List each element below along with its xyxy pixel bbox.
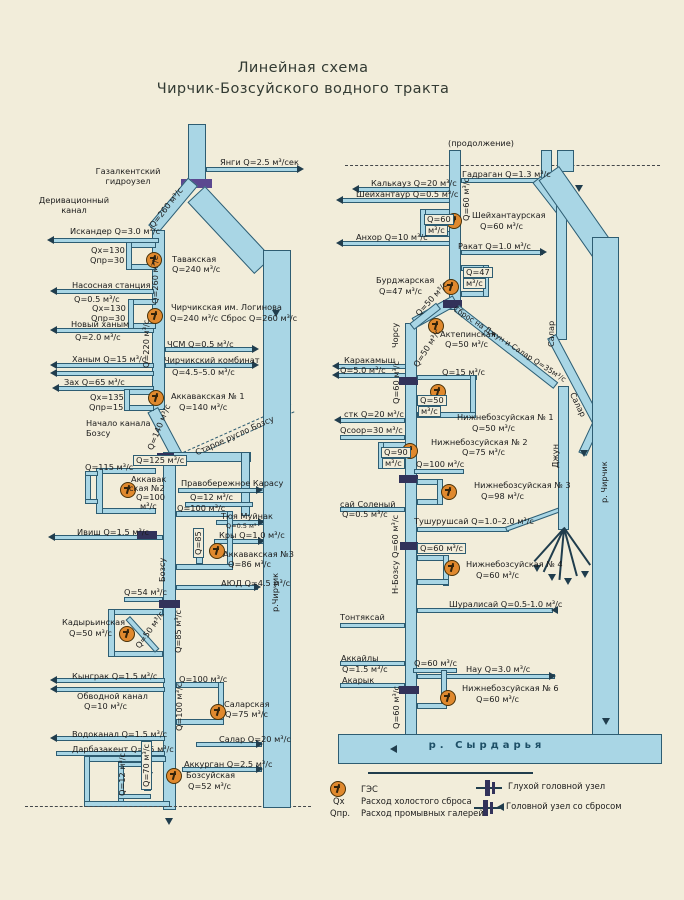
branch-canal — [414, 469, 464, 474]
arrow-left-icon — [50, 326, 57, 334]
diagram-label: Гадраган Q=1.3 м³/с — [462, 170, 551, 179]
headworks-node-bar — [399, 377, 418, 385]
canal-segment — [405, 323, 417, 740]
diagram-label: Q=50 м³/с — [69, 629, 112, 638]
arrow-left-icon — [50, 361, 57, 369]
diagram-label: сай Соленый — [340, 500, 396, 509]
diagram-label: Q=60 — [424, 214, 454, 225]
diagram-label: м³/с — [418, 406, 441, 417]
diagram-label: Чирчикский комбинат — [164, 356, 260, 365]
arrow-left-icon — [52, 384, 59, 392]
diagram-label: Q=60 м³/с — [392, 686, 401, 729]
legend-qpr-label: Расход промывных галерей — [361, 808, 484, 818]
diagram-label: Qх=130 — [91, 246, 125, 255]
diagram-label: м³/с — [382, 458, 405, 469]
diagram-label: Q=100 м³/с — [416, 460, 464, 469]
ges-icon — [440, 690, 456, 706]
branch-canal — [413, 668, 457, 673]
arrow-left-icon — [336, 196, 343, 204]
arrow-down-icon — [580, 450, 588, 457]
branch-canal — [124, 597, 163, 602]
diagram-label: гидроузел — [106, 177, 151, 186]
diagram-label: Q=60 м³/с — [476, 571, 519, 580]
diagram-label: канал — [61, 206, 87, 215]
diagram-label: Кры Q=1.0 м³/с — [219, 531, 285, 540]
legend-node-bar — [485, 780, 490, 796]
title-line2: Чирчик-Бозсуйского водного тракта — [157, 79, 449, 100]
arrow-down-icon — [575, 185, 583, 192]
arrow-left-icon — [390, 745, 397, 753]
ges-icon — [330, 781, 346, 797]
headworks-node-bar — [159, 600, 180, 608]
diagram-label: стк Q=20 м³/с — [344, 410, 404, 419]
diagram-label: Q=70 м³/с — [141, 741, 152, 790]
diagram-label: р.Чирчик — [271, 573, 280, 612]
diagram-label: м³/с — [140, 502, 157, 511]
diagram-label: Q=240 м³/с Сброс Q=260 м³/с — [170, 314, 297, 323]
diagram-label: Q=10 м³/с — [84, 702, 127, 711]
ges-icon — [444, 560, 460, 576]
headworks-node-bar — [399, 475, 418, 483]
diagram-label: Q=115 м³/с — [85, 463, 133, 472]
headworks-node-bar — [400, 542, 418, 550]
diagram-label: Кадырьинская — [62, 618, 125, 627]
legend-qx-symbol: Qх — [333, 796, 345, 806]
diagram-label: Q=4.5–5.0 м³/с — [172, 368, 235, 377]
diagram-label: Начало канала — [86, 419, 150, 428]
diagram-label: Q=50 м³/с — [472, 424, 515, 433]
diagram-label: Qпр=15 — [89, 403, 123, 412]
diagram-label: Q=60 м³/с — [417, 543, 466, 554]
diagram-label: Q=50 м³/с — [445, 340, 488, 349]
diagram-label: Qх=135 — [90, 393, 124, 402]
diagram-label: р. Чирчик — [600, 461, 609, 503]
diagram-label: Водоканал Q=1.5 м³/с — [72, 730, 167, 739]
diagram-label: Q=90 — [381, 447, 411, 458]
diagram-label: Q=60 м³/с — [476, 695, 519, 704]
diagram-label: Q=0.5 м³/с — [342, 510, 388, 519]
diagram-label: Джун — [551, 444, 560, 468]
arrow-left-icon — [50, 676, 57, 684]
branch-canal — [340, 623, 405, 628]
diagram-label: Нау Q=3.0 м³/с — [466, 665, 530, 674]
diagram-label: Q=0.5 м³ — [226, 523, 256, 530]
arrow-left-icon — [332, 362, 339, 370]
arrow-left-icon — [47, 236, 54, 244]
diagram-label: Q=50 — [417, 395, 447, 406]
branch-canal — [56, 371, 154, 376]
diagram-label: Акарык — [342, 676, 374, 685]
branch-canal — [417, 674, 555, 679]
diagram-label: Нижнебозсуйская № 3 — [474, 481, 571, 490]
scheme-page: Линейная схема Чирчик-Бозсуйского водног… — [0, 0, 684, 900]
diagram-label: Нижнебозсуйская № 1 — [457, 413, 554, 422]
arrow-down-icon — [564, 578, 572, 585]
diagram-label: Обводной канал — [77, 692, 148, 701]
ges-icon — [166, 768, 182, 784]
diagram-label: Q=100 м³/с — [179, 675, 227, 684]
legend-node-bar — [490, 802, 493, 814]
canal-segment — [556, 204, 567, 340]
diagram-label: р. Сырдарья — [429, 741, 546, 752]
legend-node-bar — [492, 782, 495, 794]
diagram-label: м³/с — [463, 278, 486, 289]
diagram-label: Qпр=30 — [90, 256, 124, 265]
diagram-label: Ивиш Q=1.5 м³/с — [77, 528, 149, 537]
diagram-label: Искандер Q=3.0 м³/с — [70, 227, 160, 236]
diagram-label: Q=52 м³/с — [188, 782, 231, 791]
diagram-label: Q=12 м³/с — [118, 753, 127, 796]
diagram-label: ЧСМ Q=0.5 м³/с — [167, 340, 234, 349]
diagram-label: Q=60 м³/с — [414, 659, 457, 668]
arrow-down-icon — [165, 818, 173, 825]
diagram-label: Q=98 м³/с — [481, 492, 524, 501]
ges-icon — [119, 626, 135, 642]
diagram-label: Деривационный — [39, 196, 109, 205]
diagram-label: Q=15 м³/с — [442, 368, 485, 377]
legend-spill-node-label: Головной узел со сбросом — [506, 801, 622, 811]
diagram-label: Аккавакская №3 — [223, 550, 294, 559]
title-line1: Линейная схема — [157, 58, 449, 79]
diagram-label: Анхор Q=10 м³/с — [356, 233, 428, 242]
diagram-label: Чорсу — [391, 323, 400, 348]
arrow-left-icon — [334, 416, 341, 424]
arrow-left-icon — [50, 734, 57, 742]
diagram-label: Q=1.5 м³/с — [342, 665, 388, 674]
diagram-label: Q=86 м³/с — [228, 560, 271, 569]
diagram-label: Правобережное Карасу — [181, 479, 283, 488]
diagram-label: Q=12 м³/с — [190, 493, 233, 502]
diagram-label: Ракат Q=1.0 м³/с — [458, 242, 531, 251]
arrow-down-icon — [548, 574, 556, 581]
diagram-label: Q=60 м³/с — [480, 222, 523, 231]
branch-canal — [340, 435, 405, 440]
diagram-label: Q=47 — [463, 267, 493, 278]
headworks-node-bar — [399, 686, 419, 694]
arrow-left-icon — [50, 685, 57, 693]
legend-blind-node-label: Глухой головной узел — [508, 781, 605, 791]
diagram-label: Q=54 м³/с — [124, 588, 167, 597]
diagram-label: Q=60 м³/с — [392, 361, 401, 404]
arrow-left-icon — [336, 239, 343, 247]
diagram-label: Q=5.0 м³/с — [340, 366, 386, 375]
diagram-label: Аккавакская № 1 — [171, 392, 245, 401]
diagram-label: Насосная станция — [72, 281, 151, 290]
diagram-label: Шейхантаур Q=0.5 м³/с — [356, 190, 458, 199]
diagram-label: Q=240 м³/с — [172, 265, 220, 274]
ges-icon — [441, 484, 457, 500]
legend-ges-label: ГЭС — [361, 784, 378, 794]
arrow-right-icon — [549, 672, 556, 680]
diagram-label: Бозсу — [158, 558, 167, 582]
diagram-label: Бозсуйская — [186, 771, 235, 780]
branch-canal — [53, 238, 159, 243]
diagram-label: Аккурган Q=2.5 м³/с — [184, 760, 272, 769]
diagram-label: м³/с — [425, 225, 448, 236]
arrow-right-icon — [540, 248, 547, 256]
arrow-left-icon — [497, 803, 504, 811]
diagram-label: Бурджарская — [376, 276, 434, 285]
arrow-down-icon — [581, 571, 589, 578]
diagram-label: Ханым Q=15 м³/с — [72, 355, 146, 364]
arrow-left-icon — [48, 533, 55, 541]
diagram-label: Тюя Муйнак — [221, 512, 273, 521]
diagram-label: Qх=130 — [92, 304, 126, 313]
diagram-label: Нижнебозсуйская № 6 — [462, 684, 559, 693]
cut-dashed-line — [345, 165, 660, 166]
arrow-left-icon — [50, 369, 57, 377]
diagram-label: Q=85 — [193, 528, 204, 558]
diagram-label: Q=75 м³/с — [225, 710, 268, 719]
diagram-label: Кынграк Q=1.5 м³/с — [72, 672, 157, 681]
diagram-label: Q=260 м³/с — [151, 256, 160, 304]
diagram-label: Шейхантаурская — [472, 211, 546, 220]
diagram-title: Линейная схема Чирчик-Бозсуйского водног… — [157, 58, 449, 100]
diagram-label: Q=47 м³/с — [379, 287, 422, 296]
arrow-left-icon — [50, 287, 57, 295]
diagram-label: Нижнебозсуйская № 4 — [466, 560, 563, 569]
diagram-label: Q=100 м³/с — [175, 683, 184, 731]
diagram-label: Q=2.0 м³/с — [75, 333, 121, 342]
diagram-label: Q=125 м³/с — [133, 455, 187, 466]
diagram-label: Аккайлы — [341, 654, 379, 663]
canal-segment — [85, 499, 98, 504]
legend-line — [368, 772, 533, 774]
diagram-label: Q=85 м³/с — [174, 610, 183, 653]
diagram-label: Янги Q=2.5 м³/сек — [220, 158, 299, 167]
diagram-label: Новый ханым — [71, 320, 129, 329]
diagram-label: Саларская — [224, 700, 270, 709]
diagram-label: Каракамыш — [344, 356, 395, 365]
diagram-label: Тушурушсай Q=1.0–2.0 м³/с — [414, 517, 534, 526]
canal-segment — [176, 564, 233, 570]
branch-canal — [417, 527, 509, 532]
canal-segment — [124, 389, 130, 411]
canal-segment — [417, 579, 449, 585]
diagram-label: Q=75 м³/с — [462, 448, 505, 457]
diagram-label: Шуралисай Q=0.5-1.0 м³/с — [449, 600, 562, 609]
diagram-label: Нижнебозсуйская № 2 — [431, 438, 528, 447]
diagram-label: Зах Q=65 м³/с — [64, 378, 125, 387]
canal-segment — [84, 756, 90, 807]
diagram-label: Тонтяксай — [340, 613, 385, 622]
canal-segment — [126, 242, 132, 270]
branch-canal — [206, 167, 298, 172]
diagram-label: Салар Q=20 м³/с — [219, 735, 291, 744]
diagram-label: Q=60 м³/с — [462, 178, 471, 221]
diagram-label: Бозсу — [86, 429, 110, 438]
diagram-label: Q=100 м³/с — [177, 504, 225, 513]
arrow-down-icon — [602, 718, 610, 725]
arrow-right-icon — [252, 345, 259, 353]
arrow-left-icon — [332, 371, 339, 379]
diagram-label: (продолжение) — [448, 139, 514, 148]
diagram-label: Газалкентский — [96, 167, 161, 176]
diagram-label: Qсоор=30 м³/с — [340, 426, 403, 435]
diagram-label: Чирчикская им. Логинова — [171, 303, 282, 312]
diagram-label: Салар — [547, 321, 556, 347]
legend-qpr-symbol: Qпр. — [330, 808, 350, 818]
diagram-label: Тавакская — [172, 255, 216, 264]
canal-segment — [188, 124, 206, 182]
diagram-label: Калькауз Q=20 м³/с — [371, 179, 457, 188]
diagram-label: Н-Бозсу Q=60 м³/с — [391, 515, 400, 594]
river-segment — [263, 250, 291, 808]
legend-qx-label: Расход холостого сброса — [361, 796, 472, 806]
diagram-label: Q=140 м³/с — [179, 403, 227, 412]
